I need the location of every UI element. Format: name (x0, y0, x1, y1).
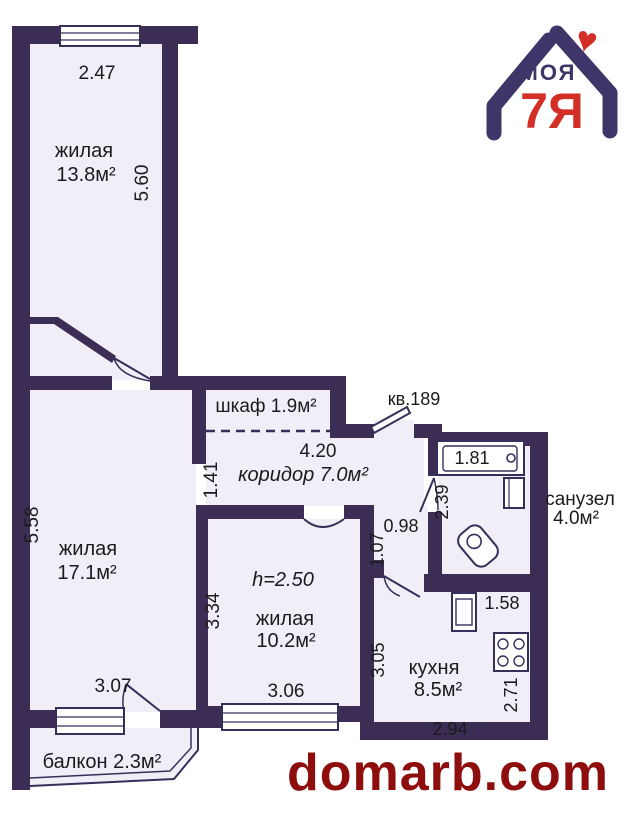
dim-kitchen-width: 2.94 (432, 719, 467, 739)
floor-plan-page: 2.47 5.60 жилая 13.8м² шкаф 1.9м² кв.189… (0, 0, 630, 814)
wall-living-small-bottom-a (196, 706, 222, 722)
wall-living-left-bottom-a (12, 710, 58, 728)
dim-living-top-width: 2.47 (79, 63, 116, 84)
logo-text-main: 7Я (520, 83, 584, 139)
window-living-left (56, 708, 124, 734)
dim-kitchen-top: 1.58 (484, 593, 519, 613)
logo-text-top: МОЯ (520, 60, 577, 85)
wall-outer-left (12, 26, 30, 790)
wall-living-small-top-left (196, 505, 304, 519)
wall-corridor-top-right (330, 424, 374, 438)
kitchen-name: кухня (409, 657, 460, 679)
floor-plan: 2.47 5.60 жилая 13.8м² шкаф 1.9м² кв.189… (0, 0, 630, 814)
bathroom-name: санузел (545, 489, 615, 510)
dim-bathroom-width: 1.81 (454, 448, 489, 468)
corridor-label: коридор 7.0м² (238, 464, 369, 486)
dim-corridor-width: 4.20 (300, 441, 337, 462)
kitchen-area: 8.5м² (414, 679, 463, 701)
dim-kitchen-right: 2.71 (501, 677, 521, 712)
bathtub-drain (507, 454, 515, 462)
dim-passage-width: 0.98 (383, 516, 418, 536)
room-living-top-area: 13.8м² (56, 164, 116, 186)
room-living-small-area: 10.2м² (256, 630, 316, 652)
dim-bathroom-height: 2.39 (432, 484, 452, 519)
window-living-top (60, 26, 140, 46)
window-living-small (222, 704, 338, 730)
watermark: domarb.com (287, 744, 609, 802)
wall-bathroom-bottom (424, 574, 548, 592)
dim-living-top-height: 5.60 (132, 165, 153, 202)
dim-kitchen-height: 3.05 (368, 642, 388, 677)
closet-label: шкаф 1.9м² (215, 396, 316, 417)
dim-living-small-width: 3.06 (268, 681, 305, 702)
room-living-top-name: жилая (55, 140, 113, 162)
dim-corridor-left: 1.41 (201, 462, 222, 499)
dim-living-left-height: 5.58 (22, 507, 43, 544)
bathroom-sink (504, 478, 524, 508)
kitchen-sink (452, 593, 476, 631)
room-living-small-ceiling: h=2.50 (252, 569, 314, 591)
room-living-left-area: 17.1м² (57, 562, 117, 584)
room-living-left-name: жилая (59, 538, 117, 560)
dim-living-left-width: 3.07 (95, 676, 132, 697)
room-living-small-name: жилая (256, 608, 314, 630)
apartment-number: кв.189 (388, 389, 440, 409)
balcony-label: балкон 2.3м² (43, 751, 162, 773)
bathroom-area: 4.0м² (553, 508, 599, 529)
wall-living-top-right (162, 44, 178, 390)
wall-corridor-left-stub (192, 388, 206, 464)
wall-living-small-bottom-b (338, 706, 374, 722)
room-living-top-floor (28, 44, 168, 380)
wall-mid-right (150, 376, 346, 390)
stove (494, 633, 528, 671)
dim-living-small-height: 3.34 (203, 592, 224, 629)
dim-passage-height: 1.07 (367, 532, 387, 567)
wall-mid-left (12, 376, 112, 390)
brand-logo: ♥ МОЯ 7Я (494, 17, 610, 139)
logo-heart-icon: ♥ (571, 17, 602, 62)
